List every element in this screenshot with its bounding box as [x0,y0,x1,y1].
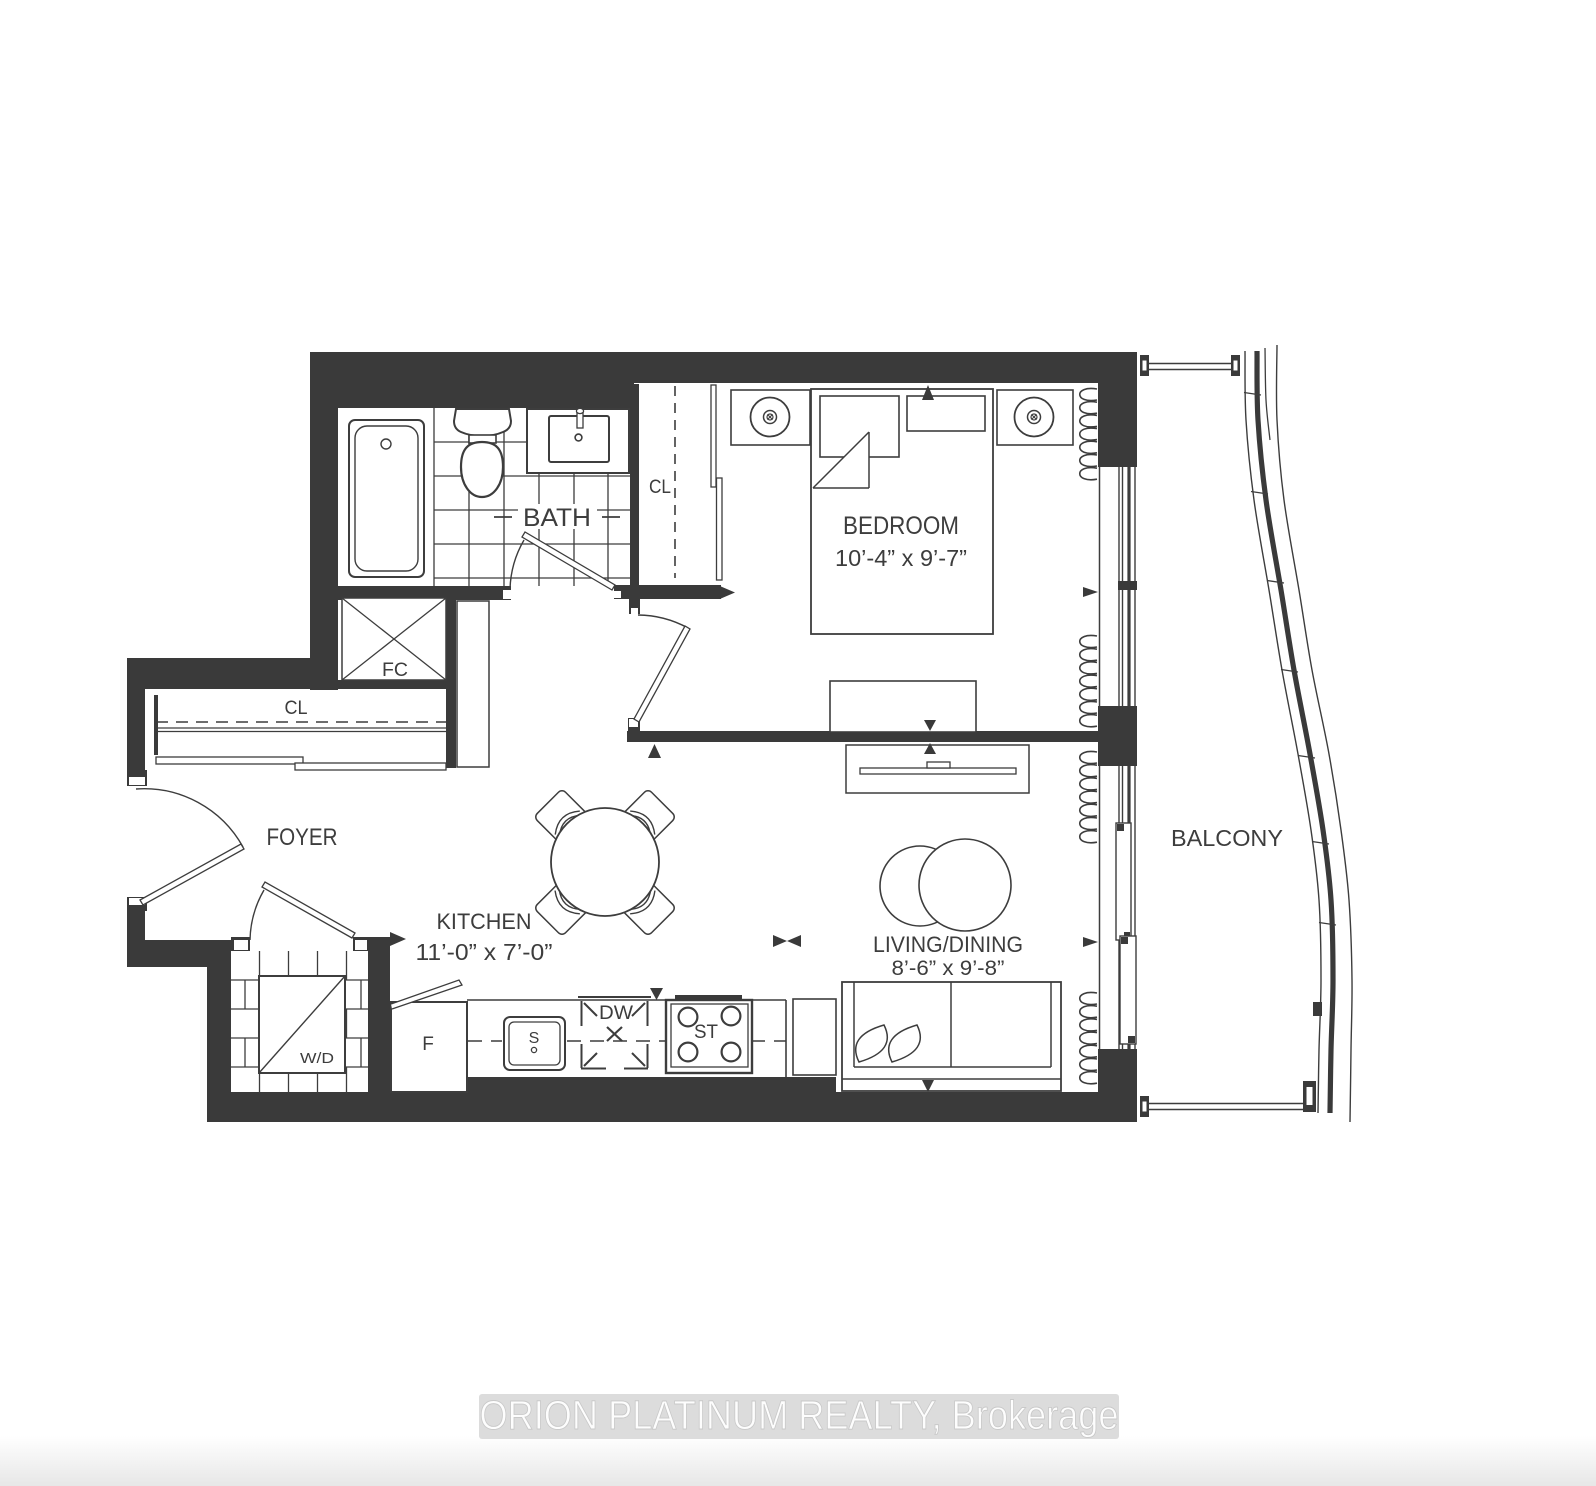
svg-text:BALCONY: BALCONY [1171,825,1283,851]
svg-text:S: S [529,1030,540,1047]
svg-text:11’-0” x 7’-0”: 11’-0” x 7’-0” [416,939,553,965]
svg-text:ORION PLATINUM REALTY, Brokera: ORION PLATINUM REALTY, Brokerage [480,1392,1119,1438]
svg-text:KITCHEN: KITCHEN [437,909,532,934]
svg-text:CL: CL [285,698,308,719]
svg-text:LIVING/DINING: LIVING/DINING [873,932,1023,957]
svg-text:W/D: W/D [300,1050,334,1067]
svg-text:ST: ST [694,1022,718,1043]
svg-text:DW: DW [599,1003,633,1024]
svg-text:FC: FC [382,660,408,681]
svg-text:10’-4” x 9’-7”: 10’-4” x 9’-7” [835,545,967,571]
svg-text:8’-6” x 9’-8”: 8’-6” x 9’-8” [892,957,1005,980]
svg-text:BATH: BATH [523,504,591,532]
svg-text:FOYER: FOYER [267,824,338,851]
svg-text:BEDROOM: BEDROOM [843,512,959,540]
svg-text:F: F [422,1034,434,1055]
svg-text:CL: CL [649,477,671,498]
